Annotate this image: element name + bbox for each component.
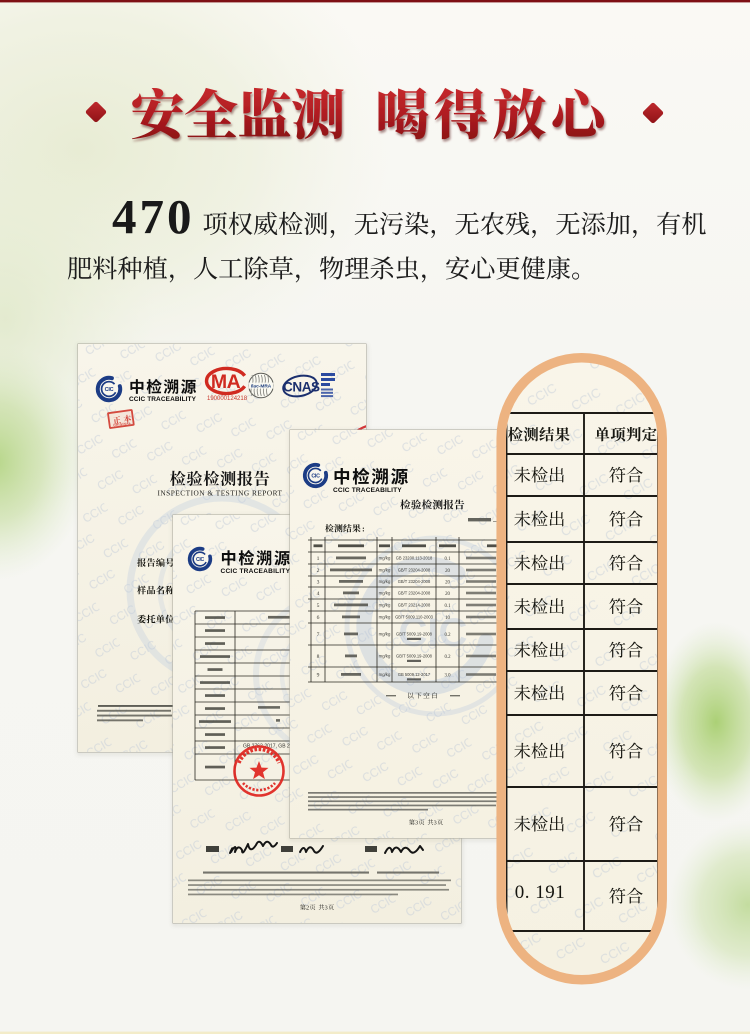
svg-text:2: 2 (317, 568, 320, 574)
svg-text:mg/kg: mg/kg (379, 603, 391, 608)
svg-text:MA: MA (211, 371, 241, 393)
svg-text:mg/kg: mg/kg (379, 568, 391, 573)
svg-text:CCIC TRACEABILITY: CCIC TRACEABILITY (129, 396, 197, 403)
svg-text:GB/T 23204-2008: GB/T 23204-2008 (398, 579, 431, 584)
svg-text:CNAS: CNAS (283, 380, 320, 395)
svg-text:GB/T 23204-2008: GB/T 23204-2008 (398, 568, 431, 573)
svg-text:20: 20 (445, 569, 450, 574)
svg-text:7: 7 (317, 632, 320, 638)
svg-text:190000124218: 190000124218 (207, 396, 248, 402)
svg-text:10: 10 (445, 616, 450, 621)
svg-text:3: 3 (317, 580, 320, 586)
svg-text:3.0: 3.0 (445, 673, 452, 678)
svg-text:GB/T 23214-2008: GB/T 23214-2008 (398, 603, 431, 608)
svg-text:470: 470 (112, 189, 195, 244)
svg-text:mg/kg: mg/kg (379, 591, 391, 596)
svg-text:ilac-MRA: ilac-MRA (251, 383, 272, 389)
svg-text:CCIC TRACEABILITY: CCIC TRACEABILITY (333, 487, 402, 494)
svg-text:CIC: CIC (196, 557, 205, 563)
svg-text:CCIC TRACEABILITY: CCIC TRACEABILITY (221, 568, 291, 575)
svg-text:CIC: CIC (105, 387, 114, 393)
svg-text:8: 8 (317, 654, 320, 660)
svg-text:4: 4 (317, 591, 320, 597)
svg-text:3: 3 (325, 905, 328, 912)
svg-text:mg/kg: mg/kg (379, 654, 391, 659)
svg-text:CIC: CIC (311, 474, 320, 480)
svg-text:2: 2 (306, 905, 309, 912)
svg-text:0.1: 0.1 (445, 604, 452, 609)
svg-text::: : (362, 525, 365, 534)
svg-text:GB/T 5009.19-2008: GB/T 5009.19-2008 (396, 654, 433, 659)
svg-text:mg/kg: mg/kg (379, 556, 391, 561)
svg-text:0.2: 0.2 (445, 655, 452, 660)
svg-text:GB 23200.113-2018: GB 23200.113-2018 (396, 556, 433, 561)
svg-text:mg/kg: mg/kg (379, 632, 391, 637)
svg-text:GB 5009.12-2017: GB 5009.12-2017 (398, 672, 431, 677)
svg-text:20: 20 (445, 592, 450, 597)
svg-text:0.1: 0.1 (445, 557, 452, 562)
svg-text:9: 9 (317, 673, 320, 679)
svg-text:0. 191: 0. 191 (515, 882, 566, 903)
svg-text:5: 5 (317, 603, 320, 609)
svg-text:mg/kg: mg/kg (379, 615, 391, 620)
svg-text:GB/T 5009.19-2008: GB/T 5009.19-2008 (396, 632, 433, 637)
svg-text:6: 6 (317, 615, 320, 621)
svg-text:3: 3 (434, 820, 437, 827)
svg-text:3: 3 (415, 820, 418, 827)
svg-text:20: 20 (445, 580, 450, 585)
svg-text:GB/T 5009.110-2003: GB/T 5009.110-2003 (395, 615, 434, 620)
svg-text:0.2: 0.2 (445, 633, 452, 638)
svg-text:mg/kg: mg/kg (379, 672, 391, 677)
svg-text:1: 1 (317, 556, 320, 562)
svg-text:INSPECTION & TESTING REPORT: INSPECTION & TESTING REPORT (157, 489, 282, 498)
svg-text:mg/kg: mg/kg (379, 579, 391, 584)
svg-text:GB/T 23204-2008: GB/T 23204-2008 (398, 591, 431, 596)
